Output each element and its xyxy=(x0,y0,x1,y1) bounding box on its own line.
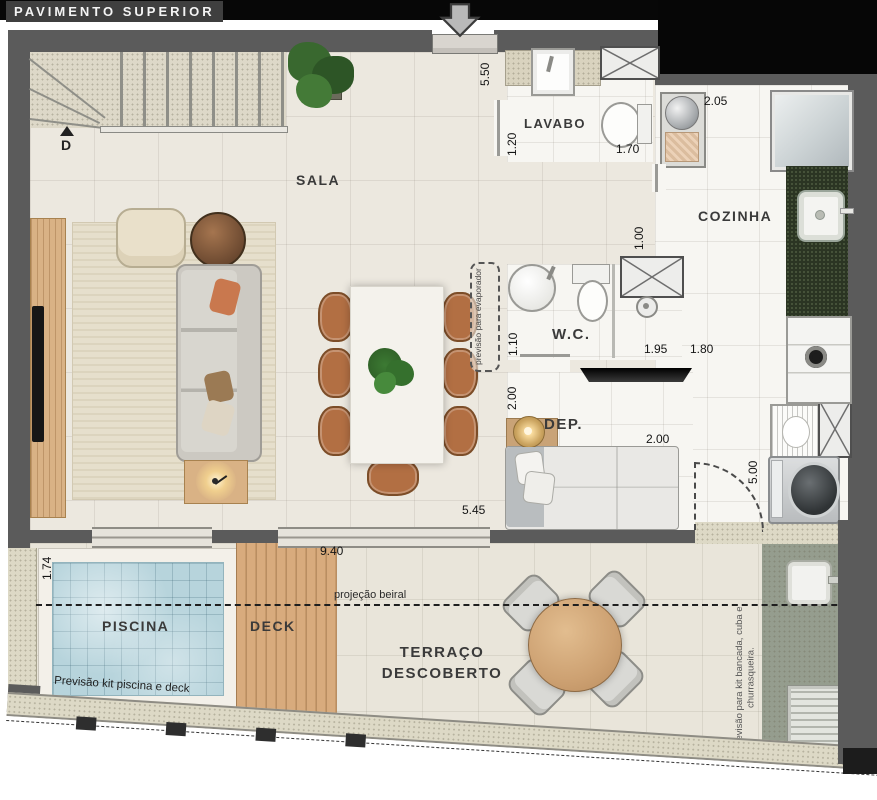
stairs-handrail xyxy=(100,126,288,133)
boundary-marker xyxy=(76,716,97,730)
glass-door xyxy=(770,90,854,172)
terrace-table xyxy=(528,598,622,692)
dim-dep-width: 2.00 xyxy=(646,432,669,446)
dim-wc-width: 1.95 xyxy=(644,342,667,356)
armchair xyxy=(116,208,186,268)
table-lamp-bulb xyxy=(212,478,218,484)
glass-partition xyxy=(612,264,615,358)
bed-pillow xyxy=(522,470,556,505)
room-label-wc: W.C. xyxy=(552,326,591,343)
dim-dep-door: 2.00 xyxy=(505,380,519,416)
dep-shelf xyxy=(580,368,692,382)
ventilation-shaft xyxy=(620,256,684,298)
washing-machine-drum xyxy=(788,462,840,518)
room-label-terraco: TERRAÇO DESCOBERTO xyxy=(352,642,532,684)
dim-sala-width: 5.45 xyxy=(462,503,485,517)
dim-cozinha-depth: 5.00 xyxy=(746,454,760,490)
barbecue-grill xyxy=(788,686,842,750)
laundry-washbasin xyxy=(665,96,699,130)
room-label-sala: SALA xyxy=(296,172,340,188)
outdoor-sink xyxy=(786,560,832,606)
dep-door-opening xyxy=(676,428,693,444)
nightstand-lamp-bulb xyxy=(524,427,532,435)
dining-chair xyxy=(318,348,354,398)
wc-door-opening xyxy=(520,358,570,372)
dim-terraco-width: 9.40 xyxy=(320,544,343,558)
room-label-cozinha: COZINHA xyxy=(698,208,772,224)
floor-plan: PAVIMENTO SUPERIOR D xyxy=(0,0,877,800)
kit-bancada-note: previsão para kit bancada, cuba e churra… xyxy=(734,596,762,760)
laundry-basket xyxy=(665,132,699,162)
potted-plant-foliage xyxy=(296,74,332,108)
window-band xyxy=(92,527,212,548)
room-label-dep: DEP. xyxy=(544,416,583,433)
washing-machine-controls xyxy=(771,460,783,518)
boundary-marker xyxy=(345,733,366,747)
wall-top xyxy=(8,30,432,54)
kitchen-sink-drain xyxy=(815,210,825,220)
dim-servico-width: 1.80 xyxy=(690,342,713,356)
wall-left xyxy=(8,30,30,553)
ventilation-shaft xyxy=(818,400,852,458)
eave-projection-label: projeção beiral xyxy=(334,589,406,601)
dining-chair xyxy=(318,292,354,342)
room-label-deck: DECK xyxy=(250,618,296,634)
cozinha-door-leaf xyxy=(655,164,658,192)
ventilation-shaft xyxy=(600,46,660,80)
dim-wc-door: 1.10 xyxy=(506,328,520,360)
dining-chair xyxy=(442,406,478,456)
shower-head-dot xyxy=(643,303,649,309)
boundary-marker xyxy=(166,722,187,736)
dish-rack-basin xyxy=(782,416,810,448)
lavabo-toilet-tank xyxy=(637,104,652,144)
cooktop-center-burner xyxy=(805,346,827,368)
wc-toilet-bowl xyxy=(577,280,608,322)
page-title: PAVIMENTO SUPERIOR xyxy=(6,1,223,22)
stairs-treads xyxy=(100,52,286,126)
dim-corridor-width: 1.00 xyxy=(632,222,646,254)
stair-direction-arrow-icon xyxy=(60,126,74,136)
gravel-border-left xyxy=(8,548,37,700)
dining-chair xyxy=(318,406,354,456)
exterior-mask-top-right xyxy=(658,0,877,74)
dim-sala-depth: 5.50 xyxy=(478,56,492,92)
kitchen-faucet xyxy=(840,208,854,214)
room-label-piscina: PISCINA xyxy=(102,618,169,634)
wall-corner-bottom-right xyxy=(843,748,877,774)
lavabo-door-leaf xyxy=(497,100,500,156)
wall-right-lower xyxy=(838,520,877,764)
window-band xyxy=(278,527,490,548)
entrance-arrow-icon xyxy=(437,2,483,38)
dim-cozinha-width: 2.05 xyxy=(704,94,727,108)
coffee-table xyxy=(190,212,246,268)
wc-door-leaf xyxy=(520,354,570,357)
dim-lavabo-door: 1.20 xyxy=(505,128,519,160)
tv xyxy=(32,306,44,442)
evaporador-note: previsão para evaporador xyxy=(470,262,500,372)
lavabo-sink xyxy=(531,48,575,96)
dim-lavabo-width: 1.70 xyxy=(616,142,639,156)
stair-direction-label: D xyxy=(61,137,71,153)
dim-piscina-depth: 1.74 xyxy=(40,550,54,586)
boundary-marker xyxy=(255,728,276,742)
room-label-lavabo: LAVABO xyxy=(524,116,586,131)
